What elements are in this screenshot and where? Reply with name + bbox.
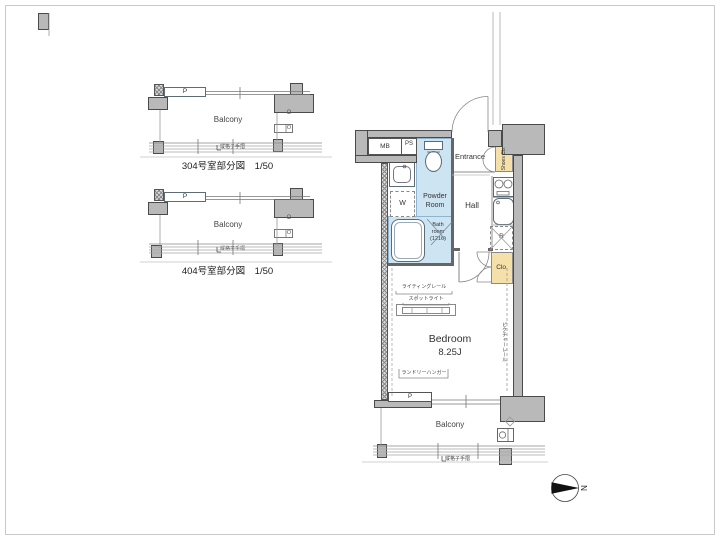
powder-room-label: Powder Room (417, 192, 453, 212)
bedroom-size-label: 8.25J (405, 347, 495, 359)
shoes-cabinet-label: Shoes Cb. (501, 147, 507, 170)
balcony-label: Balcony (195, 220, 261, 232)
bathtub-inner (394, 222, 422, 259)
north-label: N (574, 481, 588, 495)
hatched-wall (154, 189, 164, 201)
washbasin-bowl (393, 166, 411, 183)
railing-label: 縦格子手摺 (220, 144, 264, 151)
balcony-post (151, 245, 162, 258)
drain-mark-label: O (284, 110, 294, 119)
fridge-label: R (490, 233, 513, 243)
partition (451, 248, 460, 251)
balcony-post (273, 139, 283, 152)
mb-label: MB (368, 138, 402, 155)
hatched-left-wall (381, 163, 388, 400)
kitchen-sink (493, 198, 514, 225)
entrance-label: Entrance (450, 152, 490, 162)
closet-label: Clo. (491, 252, 513, 284)
stove (493, 177, 514, 197)
wall-segment (274, 94, 314, 113)
balcony-post (377, 444, 387, 458)
drain-mark-label: O (284, 215, 294, 224)
toilet-bowl (425, 151, 442, 172)
washer-label: W (390, 191, 415, 217)
partition (388, 263, 454, 266)
door-jamb-wall (488, 130, 502, 147)
outlet-box-label: O (285, 124, 293, 133)
plan-caption: 404号室部分図 1/50 (150, 266, 305, 278)
balcony-post (273, 243, 283, 256)
balcony-label: Balcony (417, 420, 483, 431)
shoes-cabinet-label-wrap: Shoes Cb. (495, 146, 513, 172)
spotlight-label: スポットライト (400, 296, 452, 303)
wall-segment (500, 396, 545, 422)
window-panel-label: P (388, 392, 432, 402)
partition-panel-label: P (164, 87, 206, 97)
plan-caption: 304号室部分図 1/50 (150, 161, 305, 173)
outlet-box-label: O (285, 229, 293, 238)
partition (488, 248, 493, 251)
page-border (5, 5, 715, 535)
railing-label: 縦格子手摺 (220, 246, 264, 253)
balcony-label: Balcony (195, 115, 261, 127)
wall-segment (274, 199, 314, 218)
evacuation-hatch (497, 428, 514, 442)
balcony-post (153, 141, 164, 154)
bedroom-label: Bedroom (405, 333, 495, 347)
bathroom-label: Bath room (1216) (426, 222, 450, 252)
wall-segment (148, 97, 168, 110)
floorplan-page: P Balcony O O 縦格子手摺 304号室部分図 1/50 P Balc… (0, 0, 720, 540)
partition-panel-label: P (164, 192, 206, 202)
ps-label: PS (401, 141, 417, 152)
wall-segment (148, 202, 168, 215)
railing-label: 縦格子手摺 (445, 456, 489, 463)
right-wall (513, 155, 523, 398)
toilet-tank (424, 141, 443, 150)
hall-label: Hall (458, 201, 486, 212)
balcony-post (499, 448, 512, 465)
lighting-rail-inner (402, 307, 450, 314)
hatched-wall (154, 84, 164, 96)
wall-segment (355, 155, 417, 163)
lighting-rail-label: ライティングレール (394, 284, 454, 291)
wall-segment (355, 130, 452, 138)
picture-rail-label: ピクチャーレール (498, 322, 507, 368)
laundry-hanger-label: ランドリーハンガー (400, 370, 448, 377)
wall-segment (38, 13, 49, 30)
